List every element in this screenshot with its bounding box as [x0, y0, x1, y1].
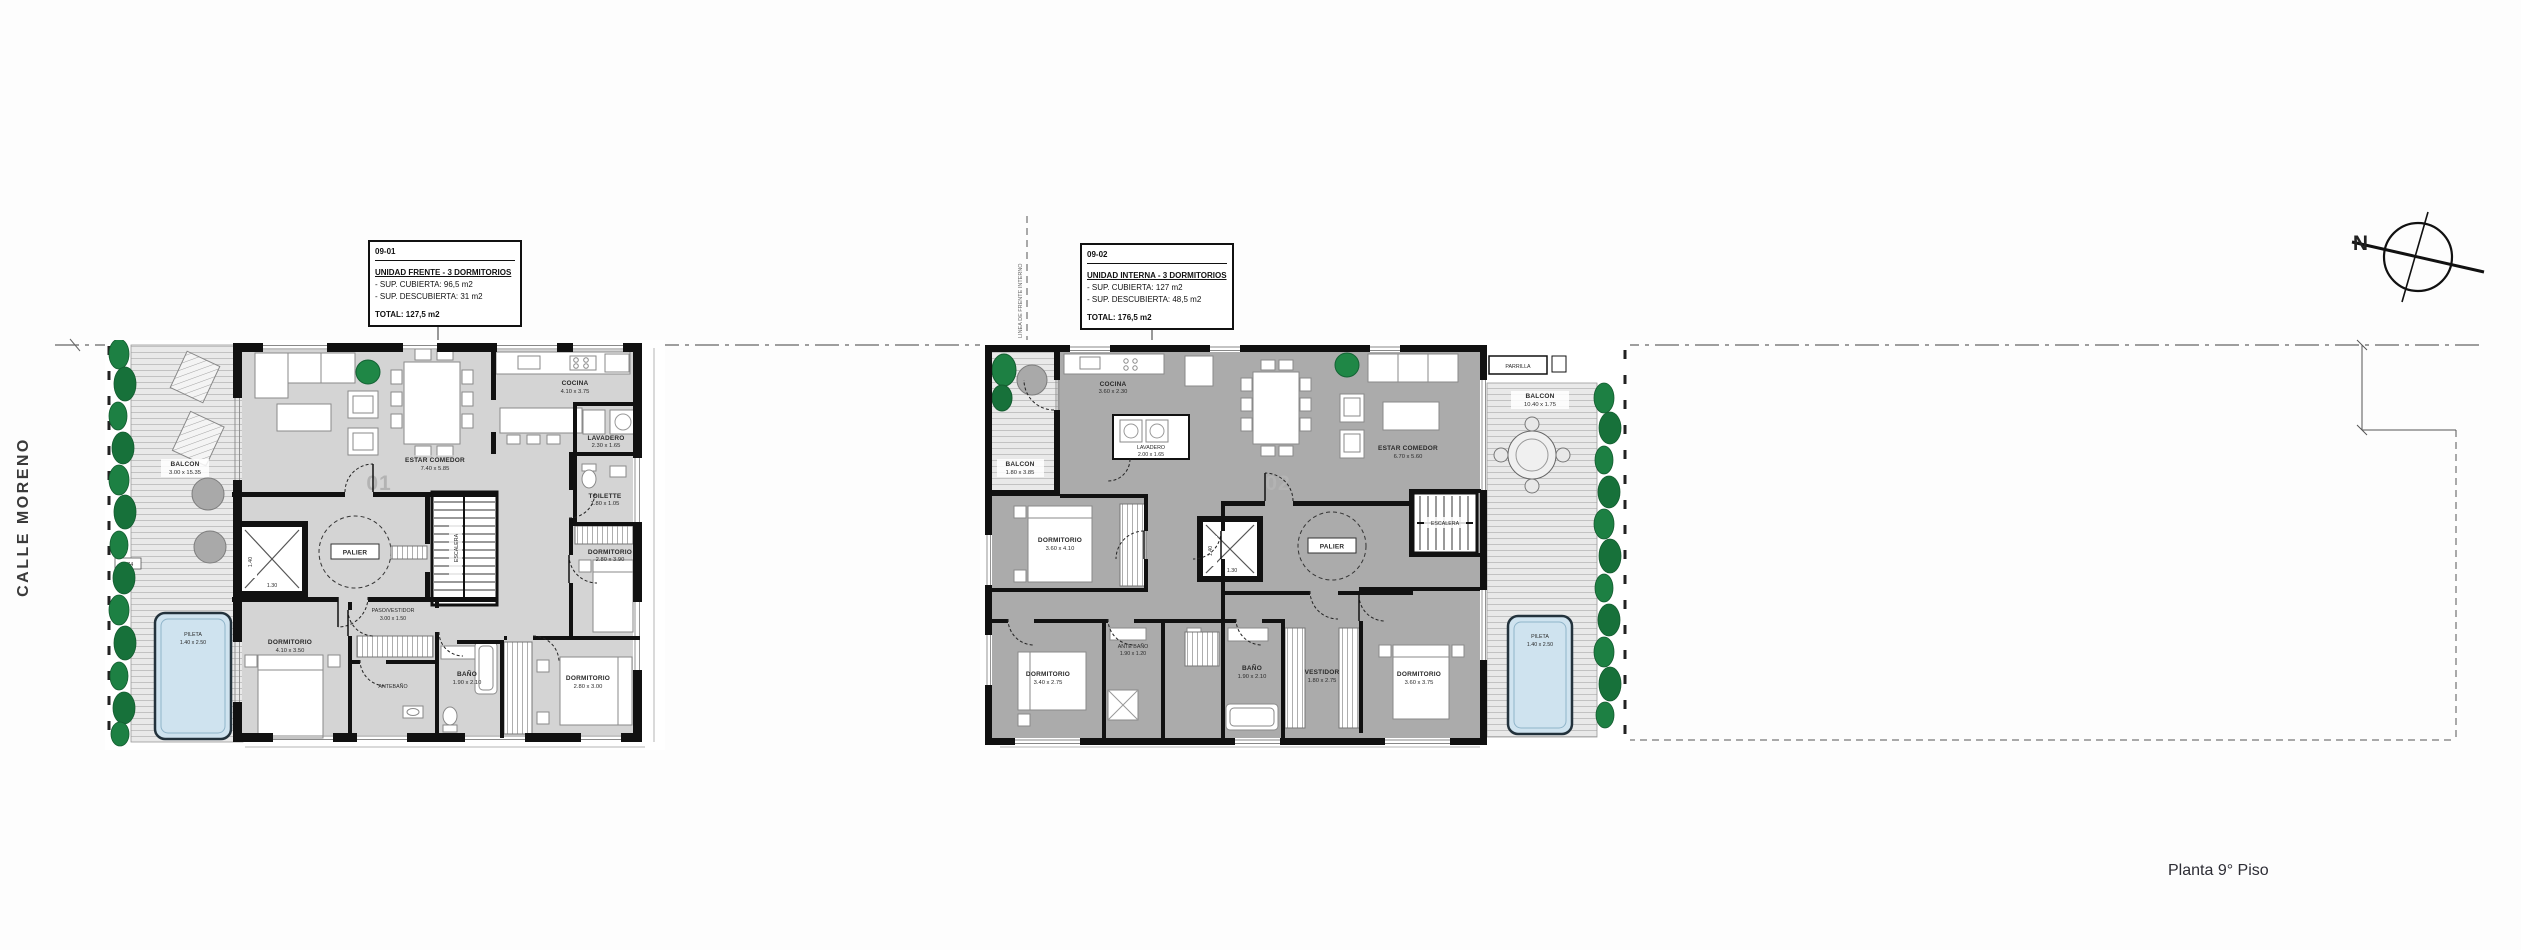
unit2-dorm3-dims: 3.60 x 3.75 — [1405, 680, 1434, 686]
unit2-balcon2-label: BALCON — [1525, 393, 1554, 400]
unit2-dorm1-label: DORMITORIO — [1038, 537, 1082, 544]
unit2-cocina-dims: 3.60 x 2.30 — [1099, 389, 1128, 395]
unit2-vestidor-label: VESTIDOR — [1305, 669, 1340, 676]
unit2-pileta-dims: 1.40 x 2.50 — [1527, 642, 1553, 648]
unit1-info-title: UNIDAD FRENTE - 3 DORMITORIOS — [375, 267, 515, 279]
unit1-number: 01 — [366, 472, 391, 495]
unit1-escalera-label: ESCALERA — [454, 533, 460, 562]
unit2-cocina-label: COCINA — [1100, 381, 1127, 388]
unit1-bano-label: BAÑO — [457, 669, 477, 678]
unit2-balcon1-dims: 1.80 x 3.85 — [1006, 470, 1035, 476]
unit2-info-uncovered: - SUP. DESCUBIERTA: 48,5 m2 — [1087, 294, 1227, 306]
balcony-table-icon — [1017, 365, 1047, 395]
unit2-pileta-label: PILETA — [1531, 634, 1549, 640]
unit1-info-box: 09-01 UNIDAD FRENTE - 3 DORMITORIOS - SU… — [368, 240, 522, 327]
closet — [504, 642, 532, 734]
street-name: CALLE MORENO — [15, 427, 35, 607]
unit2-lavadero-label: LAVADERO — [1137, 445, 1165, 451]
setback-dimension-lines — [1628, 340, 2456, 740]
unit1-dorm2-label: DORMITORIO — [566, 675, 610, 682]
unit2-lavadero-dims: 2.00 x 1.65 — [1138, 452, 1164, 458]
unit1-dorm2-dims: 2.80 x 3.00 — [574, 684, 603, 690]
unit1-balcon-dims: 3.00 x 15.35 — [169, 470, 201, 476]
unit2-lateral-balcony: PARRILLA BALCON 10.40 x 1.75 PILETA 1.40… — [1487, 356, 1597, 737]
unit1-dorm3-dims: 4.10 x 3.50 — [276, 648, 305, 654]
unit1-lavadero — [583, 410, 636, 434]
unit2-balcon1-label: BALCON — [1005, 461, 1034, 468]
unit1-bano-dims: 1.90 x 2.10 — [453, 680, 482, 686]
architectural-sheet: LINEA DE FRENTE INTERNO N 09-01 UNIDAD F… — [0, 0, 2521, 950]
plant-icon — [356, 360, 380, 384]
unit1-balcony: BALCON 3.00 x 15.35 0.74 PILETA 1.40 x 2… — [115, 345, 243, 742]
unit2-bano-label: BAÑO — [1242, 663, 1262, 672]
unit1-cocina-label: COCINA — [562, 380, 589, 387]
unit2-palier-label: PALIER — [1320, 544, 1345, 551]
unit2-pool: PILETA 1.40 x 2.50 — [1508, 616, 1572, 734]
unit1-info-uncovered: - SUP. DESCUBIERTA: 31 m2 — [375, 291, 515, 303]
plant-icon — [1335, 353, 1359, 377]
unit1-antebano-fixtures — [403, 706, 423, 718]
plant-icon — [992, 354, 1016, 386]
closet — [1185, 632, 1219, 666]
floor-plan-unit-01: BALCON 3.00 x 15.35 0.74 PILETA 1.40 x 2… — [105, 340, 665, 750]
unit1-pileta-dims: 1.40 x 2.50 — [180, 640, 206, 646]
unit2-estar-label: ESTAR COMEDOR — [1378, 445, 1438, 452]
north-compass-icon: N — [2352, 212, 2484, 302]
unit2-dorm2-label: DORMITORIO — [1026, 671, 1070, 678]
internal-front-line-label: LINEA DE FRENTE INTERNO — [1018, 263, 1024, 338]
unit1-cocina-dims: 4.10 x 3.75 — [561, 389, 590, 395]
unit2-antebano-dims: 1.90 x 1.20 — [1120, 651, 1146, 657]
unit2-info-box: 09-02 UNIDAD INTERNA - 3 DORMITORIOS - S… — [1080, 243, 1234, 330]
closet — [575, 526, 640, 544]
unit2-front-balcony: BALCON 1.80 x 3.85 — [990, 350, 1058, 495]
unit2-info-title: UNIDAD INTERNA - 3 DORMITORIOS — [1087, 270, 1227, 282]
unit2-parrilla-label: PARRILLA — [1505, 364, 1531, 370]
unit2-antebano-label: ANTE BAÑO — [1118, 643, 1149, 650]
unit2-vestidor-dims: 1.80 x 2.75 — [1308, 678, 1337, 684]
closet — [1339, 628, 1359, 728]
closet — [357, 636, 433, 657]
unit2-estar-dims: 6.70 x 5.60 — [1394, 454, 1423, 460]
north-label: N — [2353, 232, 2368, 255]
unit1-dorm1-label: DORMITORIO — [588, 549, 632, 556]
unit1-info-code: 09-01 — [375, 246, 515, 261]
unit2-elevator-depth: 1.30 — [1227, 568, 1237, 574]
unit1-antebano-label: ANTEBAÑO — [378, 683, 407, 690]
unit1-paso-label: PASO/VESTIDOR — [372, 608, 415, 614]
unit2-info-covered: - SUP. CUBIERTA: 127 m2 — [1087, 282, 1227, 294]
plant-icon — [992, 385, 1012, 411]
unit1-pool: PILETA 1.40 x 2.50 — [155, 613, 231, 739]
unit1-dorm1-dims: 2.80 x 3.90 — [596, 557, 625, 563]
unit2-bano-dims: 1.90 x 2.10 — [1238, 674, 1267, 680]
unit1-elevator-width: 1.40 — [248, 557, 254, 567]
unit2-number: 02 — [1265, 472, 1290, 495]
unit2-escalera-label: ESCALERA — [1431, 521, 1460, 527]
unit1-lavadero-label: LAVADERO — [587, 435, 624, 442]
unit2-balcon2-dims: 10.40 x 1.75 — [1524, 402, 1556, 408]
sheet-title: Planta 9° Piso — [2168, 862, 2269, 880]
unit1-elevator-depth: 1.30 — [267, 583, 277, 589]
unit1-lavadero-dims: 2.30 x 1.65 — [592, 443, 621, 449]
floor-plan-unit-02: BALCON 1.80 x 3.85 PARRILLA BALCON 10.40… — [980, 340, 1630, 750]
unit1-pileta-label: PILETA — [184, 632, 202, 638]
closet — [1120, 504, 1146, 586]
unit1-toilette-dims: 1.80 x 1.05 — [591, 501, 620, 507]
closet — [1285, 628, 1305, 728]
unit2-lavadero: LAVADERO 2.00 x 1.65 — [1113, 415, 1189, 459]
unit1-palier-label: PALIER — [343, 550, 368, 557]
unit2-dorm2-dims: 3.40 x 2.75 — [1034, 680, 1063, 686]
unit2-dorm3-label: DORMITORIO — [1397, 671, 1441, 678]
unit1-info-total: TOTAL: 127,5 m2 — [375, 309, 515, 321]
unit1-paso-dims: 3.00 x 1.50 — [380, 616, 406, 622]
unit1-estar-label: ESTAR COMEDOR — [405, 457, 465, 464]
unit2-info-code: 09-02 — [1087, 249, 1227, 264]
unit1-info-covered: - SUP. CUBIERTA: 96,5 m2 — [375, 279, 515, 291]
unit2-dorm1-dims: 3.60 x 4.10 — [1046, 546, 1075, 552]
unit2-info-total: TOTAL: 176,5 m2 — [1087, 312, 1227, 324]
unit1-dorm3-label: DORMITORIO — [268, 639, 312, 646]
unit1-balcon-label: BALCON — [170, 461, 199, 468]
unit1-estar-dims: 7.40 x 5.85 — [421, 466, 450, 472]
internal-front-line: LINEA DE FRENTE INTERNO — [1018, 216, 1027, 344]
